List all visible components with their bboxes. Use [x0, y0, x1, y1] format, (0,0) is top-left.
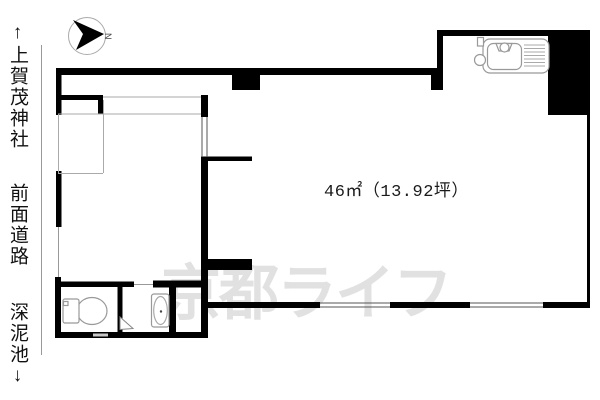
door-swing-icon — [120, 317, 133, 330]
top-right-pillar — [548, 30, 590, 115]
sanitary-top-wall-left — [55, 282, 134, 288]
kitchen-sink-icon — [475, 38, 550, 74]
floor-area-label: 46㎡（13.92坪） — [324, 176, 469, 202]
toilet-icon — [63, 298, 107, 325]
side-label-midoroga-ike: 深泥池↓ — [8, 302, 27, 388]
entry-wall-horizontal — [56, 95, 103, 100]
bottom-wall-seg3 — [543, 302, 590, 308]
center-wall-lower — [201, 157, 208, 338]
bottom-wall-seg2 — [390, 302, 470, 308]
side-label-kamigamo-shrine: ↑上賀茂神社 — [8, 22, 27, 150]
bathtub-icon — [152, 294, 170, 327]
center-wall-upper — [201, 95, 208, 117]
window-lines — [202, 117, 543, 307]
center-wall-stub-lower — [201, 259, 252, 270]
walls — [55, 30, 590, 338]
compass-north-label: N — [103, 33, 113, 40]
bottom-wall-seg1 — [201, 302, 320, 308]
floorplan-drawing: N — [0, 0, 600, 400]
compass-icon: N — [69, 18, 114, 55]
floorplan-page: ↑上賀茂神社 前面道路 深泥池↓ 京都ライフ 46㎡（13.92坪） N — [0, 0, 600, 400]
top-middle-column — [232, 68, 260, 90]
kitchen-alcove-top-wall — [437, 30, 550, 36]
sink-drainboard — [524, 45, 545, 66]
left-wall-upper — [56, 68, 62, 115]
entry-wall-vertical — [98, 95, 103, 114]
sanitary-bottom-wall — [55, 332, 208, 338]
side-label-front-road: 前面道路 — [8, 183, 27, 267]
alcove-corner-column — [431, 68, 443, 90]
bath-right-wall — [169, 287, 176, 332]
sanitary-top-wall-right — [153, 281, 208, 288]
thin-partition-lines — [58, 97, 201, 174]
center-wall-stub-upper — [201, 157, 252, 162]
right-wall — [587, 115, 590, 308]
left-wall-middle — [56, 171, 62, 227]
